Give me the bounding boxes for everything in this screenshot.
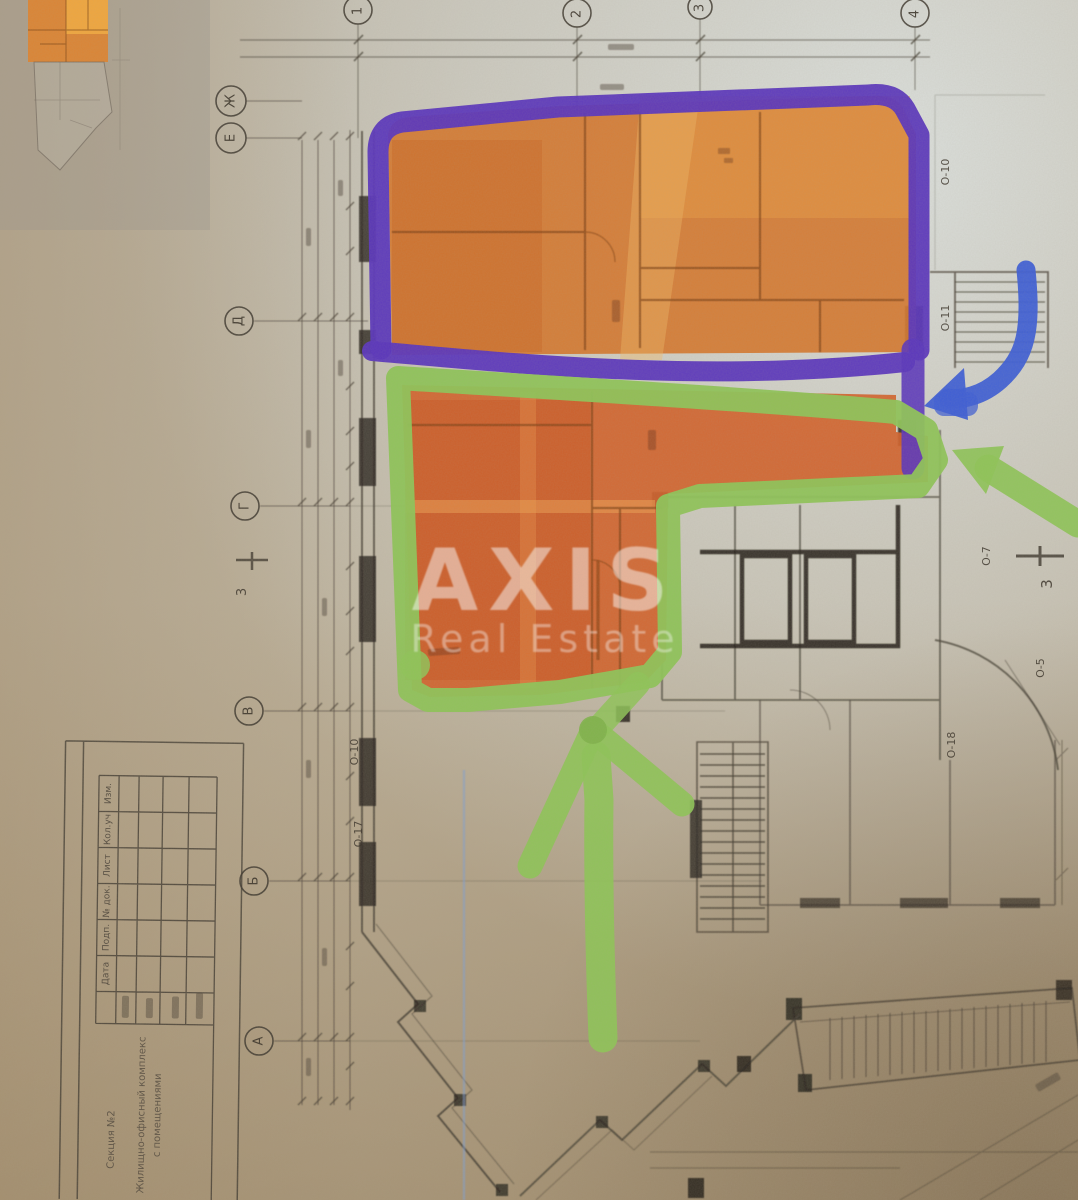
scanned-floor-plan-photo: О-10 О-11 О-7 О-5 О-18 О-10 О-17 3 3 Ж Е… — [0, 0, 1078, 1200]
scan-grain-overlay — [0, 0, 1078, 1200]
floor-plan-canvas: О-10 О-11 О-7 О-5 О-18 О-10 О-17 3 3 Ж Е… — [0, 0, 1078, 1200]
